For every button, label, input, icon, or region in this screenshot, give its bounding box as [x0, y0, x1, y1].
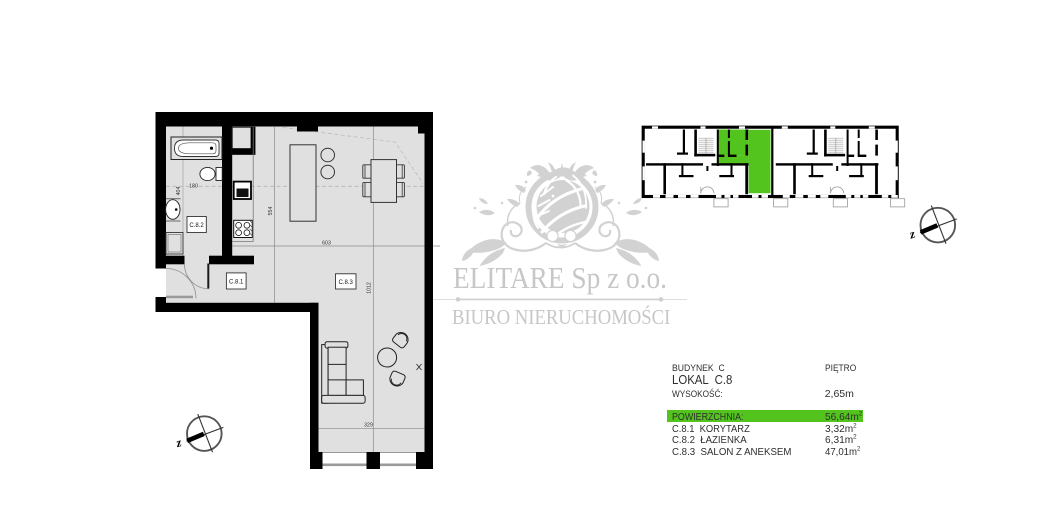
svg-text:C.8.2: C.8.2 — [189, 223, 204, 229]
svg-text:C.8.3: C.8.3 — [339, 280, 354, 286]
svg-text:1012: 1012 — [366, 282, 372, 294]
svg-text:z: z — [174, 435, 183, 450]
svg-text:180: 180 — [189, 184, 198, 190]
svg-text:404: 404 — [176, 187, 182, 196]
svg-text:554: 554 — [268, 207, 274, 216]
svg-text:C.8.1: C.8.1 — [229, 279, 244, 285]
svg-text:603: 603 — [322, 240, 331, 246]
svg-text:z: z — [907, 227, 916, 242]
svg-text:329: 329 — [364, 423, 373, 429]
